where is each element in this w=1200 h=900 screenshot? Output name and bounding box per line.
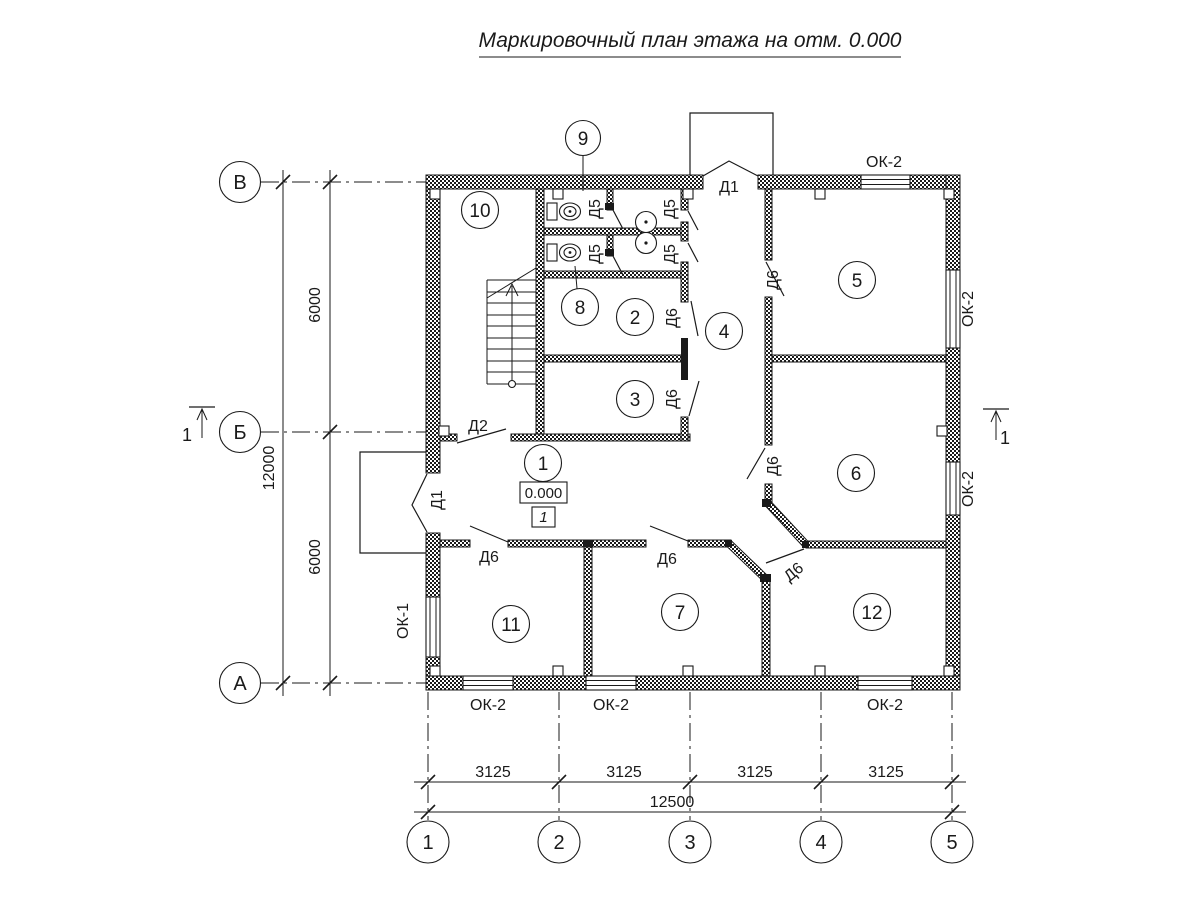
dim-3125-1: 3125	[475, 764, 511, 781]
wall	[440, 540, 470, 547]
wall	[681, 338, 688, 380]
dim-6000-top: 6000	[307, 287, 324, 323]
dim-6000-bottom: 6000	[307, 539, 324, 575]
wall	[513, 676, 586, 690]
door-label-d1: Д1	[429, 490, 446, 510]
axis-row-label: А	[233, 673, 247, 695]
dim-12500: 12500	[650, 794, 695, 811]
section-label: 1	[1000, 428, 1010, 448]
door-label-d6: Д6	[664, 308, 681, 328]
wall	[946, 348, 960, 462]
door-d6	[691, 301, 698, 336]
door-d5	[613, 210, 623, 229]
wall-chamfer	[766, 502, 809, 547]
window-label-ok2: ОК-2	[960, 291, 977, 327]
wall	[584, 547, 592, 676]
page-title: Маркировочный план этажа на отм. 0.000	[479, 29, 902, 52]
window-ok1	[426, 597, 440, 657]
room-number: 3	[630, 390, 641, 411]
door-d6	[689, 381, 699, 416]
window-label-ok2: ОК-2	[960, 471, 977, 507]
window-ok2	[463, 676, 513, 690]
wall-cap	[760, 574, 771, 582]
room-number: 7	[675, 603, 686, 624]
floor-plan-drawing: Маркировочный план этажа на отм. 0.000 В…	[0, 0, 1200, 900]
room-number: 12	[861, 603, 882, 624]
floor-number: 1	[539, 509, 547, 526]
drawing-title: Маркировочный план этажа на отм. 0.000	[479, 29, 902, 57]
wall-cap	[605, 249, 614, 256]
wall-cap	[725, 540, 732, 547]
toilet-icon	[547, 203, 581, 220]
door-d6	[650, 526, 688, 541]
door-label-d5: Д5	[662, 199, 679, 219]
wall	[426, 533, 440, 597]
window-label-ok2: ОК-2	[867, 697, 903, 714]
axis-col-label: 5	[946, 832, 957, 854]
window-label-ok2: ОК-2	[866, 154, 902, 171]
wall	[544, 271, 688, 278]
entrance-porch-left	[360, 452, 426, 553]
wall	[511, 434, 690, 441]
door-d6	[470, 526, 508, 542]
wall	[681, 417, 688, 441]
toilet-icon	[547, 244, 581, 261]
wall-cap	[583, 540, 593, 547]
door-label-d5: Д5	[587, 244, 604, 264]
sink-icon	[636, 212, 657, 233]
door-label-d6: Д6	[765, 270, 782, 290]
door-label-d1: Д1	[719, 179, 739, 196]
door-d5	[688, 243, 698, 262]
door-d1-top	[703, 161, 758, 176]
door-d6	[747, 448, 765, 479]
window-ok2	[946, 462, 960, 515]
room-number: 4	[719, 322, 730, 343]
wall	[544, 228, 688, 235]
wall	[544, 355, 681, 362]
wall	[765, 297, 772, 445]
elevation-mark: 0.000 1	[520, 482, 567, 527]
door-d6	[766, 549, 804, 563]
axis-row-label: В	[233, 172, 246, 194]
wall	[426, 175, 440, 473]
wall	[681, 222, 688, 241]
window-ok2	[946, 270, 960, 348]
wall	[762, 577, 770, 676]
elevation-value: 0.000	[525, 485, 563, 502]
door-label-d6: Д6	[765, 456, 782, 476]
door-label-d5: Д5	[587, 199, 604, 219]
dim-3125-2: 3125	[606, 764, 642, 781]
room-number: 6	[851, 464, 862, 485]
plan-canvas: Маркировочный план этажа на отм. 0.000 В…	[0, 0, 1200, 900]
room-number: 11	[501, 615, 521, 636]
wall	[681, 262, 688, 302]
entrance-porch-top	[690, 113, 773, 175]
sink-icon	[636, 233, 657, 254]
window-ok2	[858, 676, 912, 690]
room-number: 1	[538, 454, 549, 475]
wall	[426, 676, 463, 690]
wall-cap	[605, 203, 614, 210]
dim-3125-3: 3125	[737, 764, 773, 781]
wall-cap	[762, 499, 771, 507]
section-label: 1	[182, 425, 192, 445]
axis-col-label: 1	[422, 832, 433, 854]
door-label-d6: Д6	[664, 389, 681, 409]
dim-3125-4: 3125	[868, 764, 904, 781]
wall	[946, 515, 960, 690]
door-d5	[688, 211, 698, 230]
window-ok2	[586, 676, 636, 690]
room-number: 5	[852, 271, 863, 292]
window-ok2	[861, 175, 910, 189]
door-label-d2: Д2	[468, 418, 488, 435]
door-label-d6: Д6	[479, 549, 499, 566]
section-marks: 1 1	[182, 407, 1010, 448]
wall	[688, 540, 731, 547]
room-number: 2	[630, 308, 641, 329]
wall	[426, 175, 703, 189]
wall	[758, 175, 861, 189]
axis-col-label: 3	[684, 832, 695, 854]
room-number: 10	[469, 201, 490, 222]
axis-row-label: Б	[233, 422, 246, 444]
window-label-ok2: ОК-2	[593, 697, 629, 714]
window-label-ok2: ОК-2	[470, 697, 506, 714]
wall	[508, 540, 646, 547]
room-number: 8	[575, 298, 586, 319]
wall	[912, 676, 960, 690]
wall	[536, 189, 544, 441]
wall-cap	[802, 541, 809, 548]
wall	[772, 355, 946, 362]
wall	[765, 189, 772, 260]
axis-col-label: 2	[553, 832, 564, 854]
stair-start-marker	[509, 381, 516, 388]
door-label-d6: Д6	[657, 551, 677, 568]
axis-col-label: 4	[815, 832, 826, 854]
wall	[806, 541, 946, 548]
dim-12000: 12000	[261, 446, 278, 491]
window-label-ok1: ОК-1	[395, 603, 412, 639]
wall	[636, 676, 858, 690]
door-label-d6: Д6	[781, 560, 807, 586]
door-label-d5: Д5	[662, 244, 679, 264]
room-number: 9	[578, 129, 589, 150]
door-d1-left	[412, 474, 427, 532]
staircase	[487, 268, 536, 388]
